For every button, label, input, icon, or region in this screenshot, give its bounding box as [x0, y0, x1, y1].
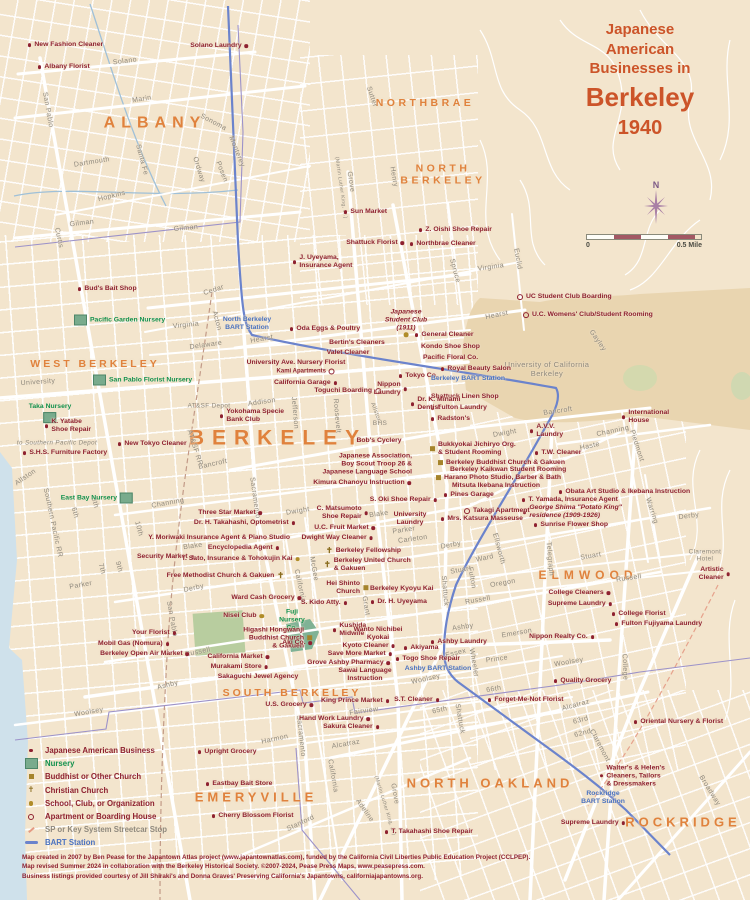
- poi-label: Fulton Fujiyama Laundry: [615, 620, 702, 628]
- poi-label: Y. Moriwaki Insurance Agent & Piano Stud…: [148, 534, 290, 542]
- poi-label: Nisei Club: [223, 612, 264, 620]
- poi-label: Hand Work Laundry: [299, 715, 370, 723]
- neighborhood-label: ALBANY: [104, 115, 207, 134]
- poi-label: Mrs. Katsura Masseuse: [441, 515, 523, 523]
- poi-label-text: Japanese Student Club (1911): [385, 308, 427, 331]
- legend-icon-cell: [24, 749, 38, 752]
- poi-label-text: Solano Laundry: [190, 42, 241, 50]
- poi-label-text: King Prince Market: [321, 697, 383, 705]
- poi-label-text: Japanese Association, Boy Scout Troop 26…: [322, 452, 412, 475]
- map-canvas: ALBANYNORTHBRAENORTH BERKELEYWEST BERKEL…: [0, 0, 750, 900]
- legend-item-label: BART Station: [45, 838, 95, 847]
- poi-label-text: Y. Moriwaki Insurance Agent & Piano Stud…: [148, 534, 290, 542]
- street-label: to Southern Pacific Depot: [17, 439, 97, 446]
- poi-label-text: Mitsuta Ikebana Instruction: [452, 482, 540, 490]
- marker-dot-icon: [365, 511, 368, 514]
- poi-label-text: Encyclopedia Agent: [208, 544, 273, 552]
- street-label: Channing: [596, 425, 630, 440]
- poi-label-text: New Fashion Cleaner: [34, 41, 103, 49]
- poi-label-text: Rockridge BART Station: [581, 790, 625, 806]
- poi-label: Takagi Apartment: [464, 507, 530, 515]
- legend-icon-cell: [24, 814, 38, 820]
- poi-label-text: New Tokyo Cleaner: [124, 440, 186, 448]
- poi-label-text: Mobil Gas (Nomura): [98, 640, 163, 648]
- marker-dot-icon: [530, 429, 533, 432]
- legend-sch-icon: [29, 801, 34, 806]
- poi-label-text: Kyoto Cleaner: [343, 642, 389, 650]
- poi-label: New Tokyo Cleaner: [118, 440, 187, 448]
- street-label: BHS: [373, 420, 388, 428]
- marker-dot-icon: [344, 601, 347, 604]
- poi-label: Berkeley Open Air Market: [100, 650, 189, 658]
- street-label: Wheeler: [466, 648, 479, 678]
- title-line-4: 1940: [585, 115, 695, 141]
- poi-label-text: Kimura Chanoyu Instruction: [313, 479, 404, 487]
- poi-label-text: Yokohama Specie Bank Club: [226, 408, 284, 424]
- poi-label: Aki Co.: [282, 639, 312, 647]
- street-label: Grant: [359, 596, 371, 617]
- street-label: Roosevelt: [330, 398, 341, 433]
- poi-label: ✝Berkeley Fellowship: [326, 547, 401, 555]
- marker-dot-icon: [404, 387, 407, 390]
- marker-dot-icon: [344, 210, 347, 213]
- legend-item: School, Club, or Organization: [24, 797, 167, 810]
- marker-bud-icon: [438, 461, 443, 466]
- poi-label-text: Security Market: [137, 553, 188, 561]
- legend-item-label: Christian Church: [45, 786, 108, 795]
- poi-label: East Bay Nursery: [61, 493, 133, 504]
- street-label: Hopkins: [97, 190, 126, 205]
- poi-label-text: Hei Shinto Church: [326, 580, 360, 596]
- title-line-2: Businesses in: [585, 59, 695, 79]
- poi-label: General Cleaner: [415, 331, 474, 339]
- marker-sch-icon: [296, 557, 301, 562]
- marker-nur-icon: [120, 493, 133, 504]
- poi-label: Bertin's Cleaners: [329, 339, 385, 347]
- marker-dot-icon: [419, 228, 422, 231]
- poi-label: Sakaguchi Jewel Agency: [218, 673, 299, 681]
- poi-label: Sawai Language Instruction: [338, 667, 391, 683]
- poi-label: Wanto Nichibei Kyokai: [354, 626, 403, 642]
- poi-label: Toguchi Boarding: [314, 387, 381, 395]
- poi-label-text: Eastbay Bait Store: [212, 780, 272, 788]
- poi-label-text: Three Star Market: [198, 509, 255, 517]
- poi-label-text: Toguchi Boarding: [314, 387, 372, 395]
- poi-label: Pacific Floral Co.: [423, 354, 478, 362]
- legend-item-label: Apartment or Boarding House: [45, 812, 156, 821]
- marker-dot-icon: [389, 652, 392, 655]
- poi-label-text: Obata Art Studio & Ikebana Instruction: [565, 488, 690, 496]
- legend-icon-cell: [24, 841, 38, 844]
- poi-label-text: Ward Cash Grocery: [231, 594, 294, 602]
- street-label: Euclid: [511, 248, 523, 271]
- poi-label-text: Sakaguchi Jewel Agency: [218, 673, 299, 681]
- marker-dot-icon: [186, 652, 189, 655]
- poi-label-text: Berkeley BART Station: [431, 375, 505, 383]
- street-label: Fulton: [465, 567, 477, 590]
- marker-dot-icon: [206, 782, 209, 785]
- street-label: Piedmont: [627, 429, 645, 463]
- poi-label-text: Walter's & Helen's Cleaners, Tailors & D…: [606, 764, 665, 787]
- neighborhood-label: EMERYVILLE: [195, 789, 318, 804]
- marker-dot-icon: [333, 628, 336, 631]
- legend-chr-icon: ✝: [28, 786, 35, 794]
- marker-dot-icon: [591, 635, 594, 638]
- marker-dot-icon: [265, 665, 268, 668]
- marker-dot-icon: [310, 703, 313, 706]
- street-label: McGee: [307, 556, 319, 582]
- credit-line-2: Map revised Summer 2024 in collaboration…: [22, 862, 737, 871]
- marker-dot-icon: [45, 424, 48, 427]
- marker-dot-icon: [559, 490, 562, 493]
- poi-label-text: Fulton Fujiyama Laundry: [621, 620, 702, 628]
- street-label: Dwight: [286, 506, 311, 518]
- poi-label-text: George Shima "Potato King" residence (19…: [529, 504, 622, 520]
- street-label: Delaware: [189, 340, 223, 353]
- poi-label-text: Artistic Cleaner: [699, 566, 724, 582]
- marker-dot-icon: [535, 451, 538, 454]
- legend-item: ✝Christian Church: [24, 784, 167, 797]
- poi-label-text: Nippon Realty Co.: [529, 633, 588, 641]
- legend-nur-icon: [25, 758, 38, 769]
- scale-strip: [586, 234, 702, 240]
- poi-label: Kimura Chanoyu Instruction: [313, 479, 411, 487]
- street-label: Allston: [14, 468, 38, 488]
- poi-label-text: Cherry Blossom Florist: [218, 812, 293, 820]
- street-label: Grove: [388, 783, 400, 805]
- poi-label-text: Harano Photo Studio, Barber & Bath: [444, 474, 561, 482]
- marker-dot-icon: [554, 679, 557, 682]
- marker-dot-icon: [266, 655, 269, 658]
- street-label: Grove: [344, 171, 355, 193]
- poi-label-text: Togo Shoe Repair: [402, 655, 460, 663]
- street-label: Blake: [183, 542, 203, 553]
- legend-item: BART Station: [24, 836, 167, 849]
- poi-label: Supreme Laundry: [548, 600, 612, 608]
- poi-label: Obata Art Studio & Ikebana Instruction: [559, 488, 690, 496]
- poi-label: New Fashion Cleaner: [28, 41, 103, 49]
- marker-dot-icon: [38, 65, 41, 68]
- street-label: Woolsey: [411, 673, 442, 687]
- poi-label: Forget-Me-Not Florist: [488, 696, 564, 704]
- marker-dot-icon: [220, 414, 223, 417]
- marker-apt-icon: [464, 508, 470, 514]
- poi-label: Artistic Cleaner: [699, 566, 730, 582]
- marker-dot-icon: [367, 717, 370, 720]
- poi-label: Northbrae Cleaner: [410, 240, 476, 248]
- poi-label-text: Aki Co.: [282, 639, 305, 647]
- marker-dot-icon: [276, 546, 279, 549]
- poi-label-text: Berkeley Kyoyu Kai: [370, 585, 433, 593]
- marker-dot-icon: [371, 600, 374, 603]
- poi-label: Sakura Cleaner: [323, 723, 379, 731]
- marker-sch-icon: [404, 333, 409, 338]
- poi-label: Yokohama Specie Bank Club: [220, 408, 284, 424]
- marker-dot-icon: [408, 481, 411, 484]
- marker-dot-icon: [309, 641, 312, 644]
- poi-label-text: Taka Nursery: [29, 403, 72, 411]
- poi-label-text: Free Methodist Church & Gakuen: [167, 572, 275, 580]
- street-label: Gayley: [587, 329, 608, 354]
- poi-label-text: Dwight Way Cleaner: [302, 534, 367, 542]
- street-label: Shattuck: [439, 575, 450, 606]
- marker-dot-icon: [293, 260, 296, 263]
- street-label: University of California Berkeley: [505, 361, 590, 379]
- scale-half-mile-label: 0.5 Mile: [677, 242, 702, 249]
- poi-label-text: Nisei Club: [223, 612, 256, 620]
- poi-label-text: Northbrae Cleaner: [416, 240, 475, 248]
- poi-label-text: Hand Work Laundry: [299, 715, 363, 723]
- poi-label: King Prince Market: [321, 697, 389, 705]
- poi-label: S. Kido Atty.: [301, 599, 347, 607]
- marker-dot-icon: [436, 698, 439, 701]
- marker-dot-icon: [727, 572, 730, 575]
- compass-north-letter: N: [653, 180, 660, 190]
- street-label: Ashby: [157, 679, 180, 692]
- street-label: Alcatraz: [331, 738, 360, 751]
- marker-dot-icon: [386, 699, 389, 702]
- legend-dot-icon: [29, 749, 32, 752]
- street-label: Carleton: [398, 534, 429, 546]
- marker-dot-icon: [615, 622, 618, 625]
- street-label: Cedar: [203, 284, 226, 298]
- legend-item: Apartment or Boarding House: [24, 810, 167, 823]
- poi-label-text: Kami Apartments: [277, 369, 326, 376]
- legend-icon-cell: [24, 774, 38, 779]
- poi-label-text: J. Uyeyama, Insurance Agent: [299, 254, 352, 270]
- street-label: Virginia: [477, 262, 504, 274]
- poi-label: Harano Photo Studio, Barber & Bath: [436, 474, 561, 482]
- poi-label-text: Berkeley Fellowship: [336, 547, 401, 555]
- poi-label-text: California Garage: [274, 379, 331, 387]
- neighborhood-label: NORTH OAKLAND: [407, 775, 574, 790]
- marker-dot-icon: [334, 381, 337, 384]
- street-label: Russell: [465, 595, 492, 608]
- marker-dot-icon: [385, 830, 388, 833]
- street-label: Derby: [440, 540, 462, 552]
- legend: Japanese American BusinessNurseryBuddhis…: [24, 744, 167, 850]
- poi-label-text: S. Kido Atty.: [301, 599, 341, 607]
- street-label: Derby: [678, 511, 700, 522]
- poi-label: Pacific Garden Nursery: [74, 315, 165, 326]
- poi-label-text: University Laundry: [394, 511, 427, 527]
- marker-apt-icon: [329, 369, 335, 375]
- street-label: Jefferson: [288, 397, 299, 430]
- poi-label-text: Royal Beauty Salon: [447, 365, 510, 373]
- street-label: 66th: [486, 685, 502, 696]
- legend-item: Japanese American Business: [24, 744, 167, 757]
- marker-chr-icon: ✝: [326, 547, 333, 555]
- scale-zero-label: 0: [586, 242, 590, 249]
- marker-dot-icon: [622, 415, 625, 418]
- poi-label-text: Forget-Me-Not Florist: [494, 696, 563, 704]
- marker-dot-icon: [441, 367, 444, 370]
- poi-label-text: Shattuck Florist: [346, 239, 397, 247]
- marker-dot-icon: [387, 661, 390, 664]
- street-label: Harmon: [261, 733, 289, 747]
- poi-label: K. Yatabe Shoe Repair: [45, 418, 91, 434]
- marker-apt-icon: [523, 312, 529, 318]
- poi-label-text: Ashby Laundry: [437, 638, 486, 646]
- poi-label: S.H.S. Furniture Factory: [23, 449, 107, 457]
- legend-icon-cell: [24, 829, 38, 831]
- poi-label: Nippon Laundry: [374, 381, 407, 397]
- poi-label-text: Bukkyokai Jichiryo Org. & Student Roomin…: [438, 441, 516, 457]
- street-label: Santa Fe: [133, 144, 149, 177]
- poi-label: San Pablo Florist Nursery: [93, 375, 192, 386]
- poi-label-text: Wanto Nichibei Kyokai: [354, 626, 403, 642]
- poi-label-text: Sunrise Flower Shop: [540, 521, 608, 529]
- poi-label: Dr. H. Uyeyama: [371, 598, 427, 606]
- poi-label: Free Methodist Church & Gakuen✝: [167, 572, 284, 580]
- poi-label-text: International House: [628, 409, 669, 425]
- marker-dot-icon: [372, 526, 375, 529]
- poi-label: Royal Beauty Salon: [441, 365, 511, 373]
- poi-label: Kami Apartments: [277, 369, 335, 376]
- poi-label: S.T. Cleaner: [394, 696, 439, 704]
- marker-dot-icon: [78, 287, 81, 290]
- poi-label-text: Mrs. Katsura Masseuse: [447, 515, 523, 523]
- poi-label: Sunrise Flower Shop: [534, 521, 608, 529]
- poi-label-text: North Berkeley BART Station: [223, 316, 271, 332]
- legend-item: SP or Key System Streetcar Stop: [24, 823, 167, 836]
- poi-label-text: College Cleaners: [548, 589, 603, 597]
- marker-dot-icon: [607, 591, 610, 594]
- poi-label-text: Dr. H. Uyeyama: [377, 598, 427, 606]
- poi-label-text: S.H.S. Furniture Factory: [29, 449, 107, 457]
- poi-label: Supreme Laundry: [561, 819, 625, 827]
- marker-dot-icon: [600, 774, 603, 777]
- street-label: 63rd: [572, 715, 589, 727]
- poi-label-text: C. Matsumoto Shoe Repair: [317, 505, 362, 521]
- street-label: Claremont: [587, 728, 611, 764]
- poi-label: Oda Eggs & Poultry: [290, 325, 360, 333]
- marker-dot-icon: [488, 698, 491, 701]
- legend-icon-cell: [24, 801, 38, 806]
- poi-label: University Ave. Nursery Florist: [247, 359, 346, 367]
- compass-rose: N: [636, 178, 676, 230]
- poi-label-text: General Cleaner: [421, 331, 473, 339]
- poi-label-text: Supreme Laundry: [561, 819, 619, 827]
- legend-item-label: Buddhist or Other Church: [45, 772, 141, 781]
- marker-dot-icon: [410, 242, 413, 245]
- poi-label: Rockridge BART Station: [581, 790, 625, 806]
- poi-label: Grove Ashby Pharmacy: [307, 659, 390, 667]
- street-label: University: [20, 378, 55, 389]
- poi-label-text: Ashby BART Station: [405, 665, 471, 673]
- poi-label-text: California Market: [207, 653, 262, 661]
- poi-label-text: Radston's: [437, 415, 470, 423]
- poi-label: Upright Grocery: [198, 748, 257, 756]
- street-label: Ordway: [190, 156, 206, 184]
- marker-dot-icon: [166, 642, 169, 645]
- poi-label: California Market: [207, 653, 269, 661]
- poi-label-text: Save More Market: [328, 650, 386, 658]
- marker-dot-icon: [290, 327, 293, 330]
- poi-label: Dr. H. Takahashi, Optometrist: [194, 519, 295, 527]
- poi-label-text: A.V.V. Laundry: [536, 423, 563, 439]
- poi-label: U.C. Womens' Club/Student Rooming: [523, 311, 653, 319]
- poi-label: Bukkyokai Jichiryo Org. & Student Roomin…: [430, 441, 516, 457]
- street-label: 9th: [113, 561, 124, 574]
- poi-label: Oriental Nursery & Florist: [634, 718, 723, 726]
- street-label: Bancroft: [543, 406, 573, 418]
- poi-label: Walter's & Helen's Cleaners, Tailors & D…: [600, 764, 665, 787]
- poi-label: Bob's Cyclery: [356, 437, 401, 445]
- poi-label: Quality Grocery: [554, 677, 611, 685]
- street-label: Ashby: [452, 622, 474, 633]
- street-label: Haste: [579, 441, 601, 453]
- map-credits: Map created in 2007 by Ben Pease for the…: [22, 853, 737, 881]
- poi-label-text: Dr. K. Minami Dentist: [417, 396, 460, 412]
- legend-icon-cell: [24, 758, 38, 769]
- poi-label-text: Valet Cleaner: [327, 349, 370, 357]
- poi-label: Taka Nursery: [29, 403, 72, 411]
- street-label: Alcatraz: [561, 698, 591, 713]
- credit-line-3: Business listings provided courtesy of J…: [22, 872, 737, 881]
- street-label: Derby: [183, 583, 205, 595]
- poi-label-text: S.T. Cleaner: [394, 696, 433, 704]
- marker-dot-icon: [404, 646, 407, 649]
- street-label: Monterey: [226, 135, 246, 168]
- marker-dot-icon: [415, 333, 418, 336]
- title-line-1: Japanese American: [585, 20, 695, 59]
- poi-label: Sun Market: [344, 208, 387, 216]
- poi-label: Valet Cleaner: [327, 349, 370, 357]
- poi-label-text: T.W. Cleaner: [541, 449, 581, 457]
- poi-label-text: Oriental Nursery & Florist: [640, 718, 723, 726]
- map-title: Japanese American Businesses in Berkeley…: [585, 20, 695, 141]
- marker-dot-icon: [411, 402, 414, 405]
- marker-dot-icon: [376, 725, 379, 728]
- poi-label: T.W. Cleaner: [535, 449, 581, 457]
- street-label: Parker: [69, 580, 93, 592]
- poi-label: J. Uyeyama, Insurance Agent: [293, 254, 352, 270]
- poi-label-text: Murakami Store: [211, 663, 262, 671]
- marker-dot-icon: [441, 517, 444, 520]
- marker-dot-icon: [634, 720, 637, 723]
- legend-item: Nursery: [24, 757, 167, 770]
- legend-item-label: Nursery: [45, 759, 74, 768]
- poi-label-text: Nippon Laundry: [374, 381, 401, 397]
- poi-label-text: Berkeley Open Air Market: [100, 650, 182, 658]
- street-label: Channing: [151, 497, 185, 511]
- marker-dot-icon: [401, 241, 404, 244]
- street-label: Curtis: [52, 227, 64, 249]
- poi-label-text: Sawai Language Instruction: [338, 667, 391, 683]
- legend-item-label: School, Club, or Organization: [45, 799, 155, 808]
- poi-label: University Laundry: [394, 511, 427, 527]
- scale-bar: 0 0.5 Mile: [586, 234, 702, 249]
- poi-label: Berkeley Kyoyu Kai: [370, 585, 433, 593]
- poi-label: College Cleaners: [548, 589, 610, 597]
- poi-label: T. Sato, Insurance & Tohokujin Kai: [182, 555, 300, 563]
- poi-label-text: Your Florist: [132, 629, 170, 637]
- poi-label-text: U.S. Grocery: [265, 701, 306, 709]
- street-label: Virginia: [172, 321, 199, 332]
- poi-label: S. Oki Shoe Repair: [370, 496, 437, 504]
- poi-label-text: Quality Grocery: [560, 677, 611, 685]
- street-label: Broadway: [696, 774, 721, 807]
- poi-label-text: College Florist: [618, 610, 665, 618]
- poi-label: Ashby Laundry: [431, 638, 487, 646]
- poi-label-text: Upright Grocery: [204, 748, 256, 756]
- street-label: Claremont Hotel: [683, 549, 728, 564]
- street-label: Marin: [132, 94, 153, 105]
- poi-label: Radston's: [431, 415, 470, 423]
- street-label: Adeline: [353, 798, 375, 824]
- marker-chr-icon: ✝: [277, 572, 284, 580]
